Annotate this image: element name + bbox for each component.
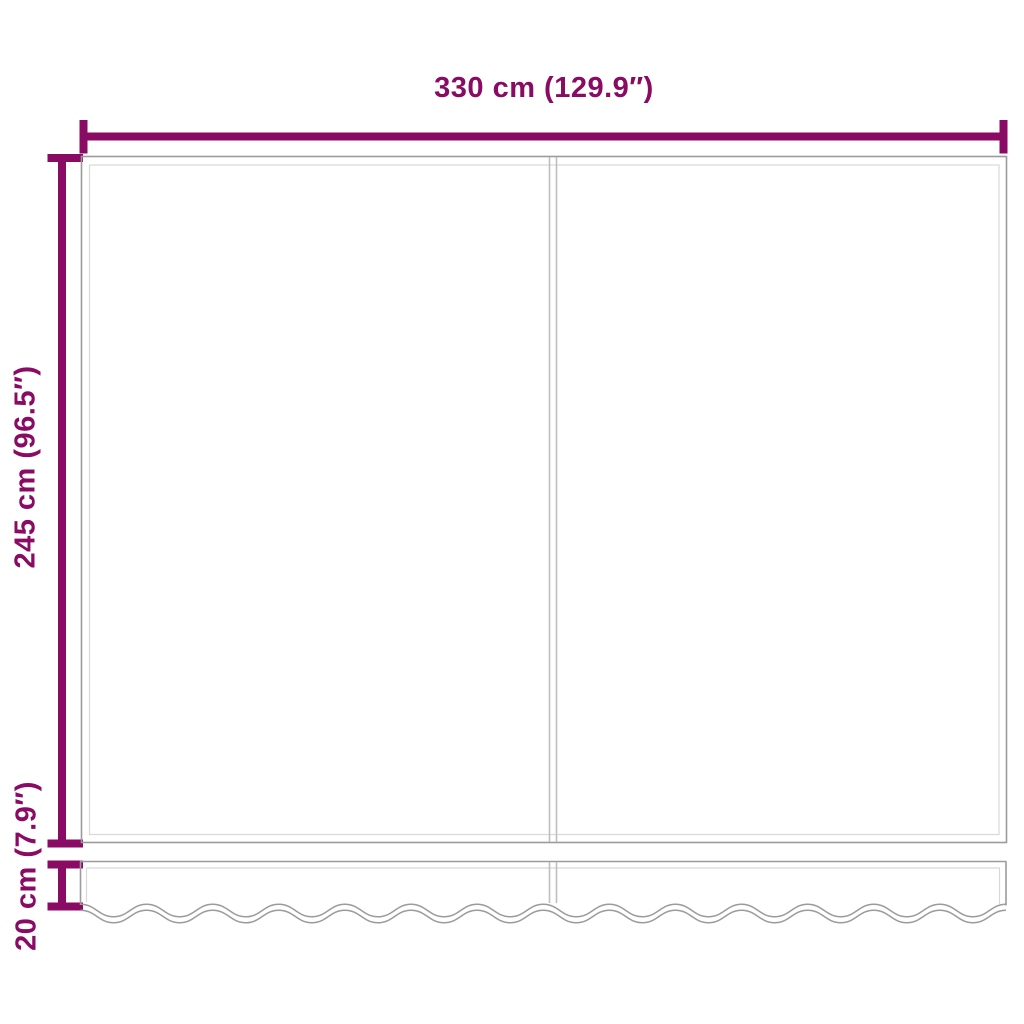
valance-wave-lower	[81, 910, 1007, 923]
fabric-panel	[82, 157, 1007, 843]
fabric-panel-inner-line	[90, 165, 1000, 835]
fabric-panel-outline	[82, 157, 1007, 843]
width-dimension-bracket	[83, 120, 1004, 154]
height-dimension-bracket	[48, 158, 84, 844]
diagram-graphics	[0, 0, 1024, 1024]
awning-fabric-dimension-diagram: 330 cm (129.9″) 245 cm (96.5″) 20 cm (7.…	[0, 0, 1024, 1024]
valance-dimension-bracket	[48, 865, 84, 907]
valance-strip	[80, 862, 1007, 923]
